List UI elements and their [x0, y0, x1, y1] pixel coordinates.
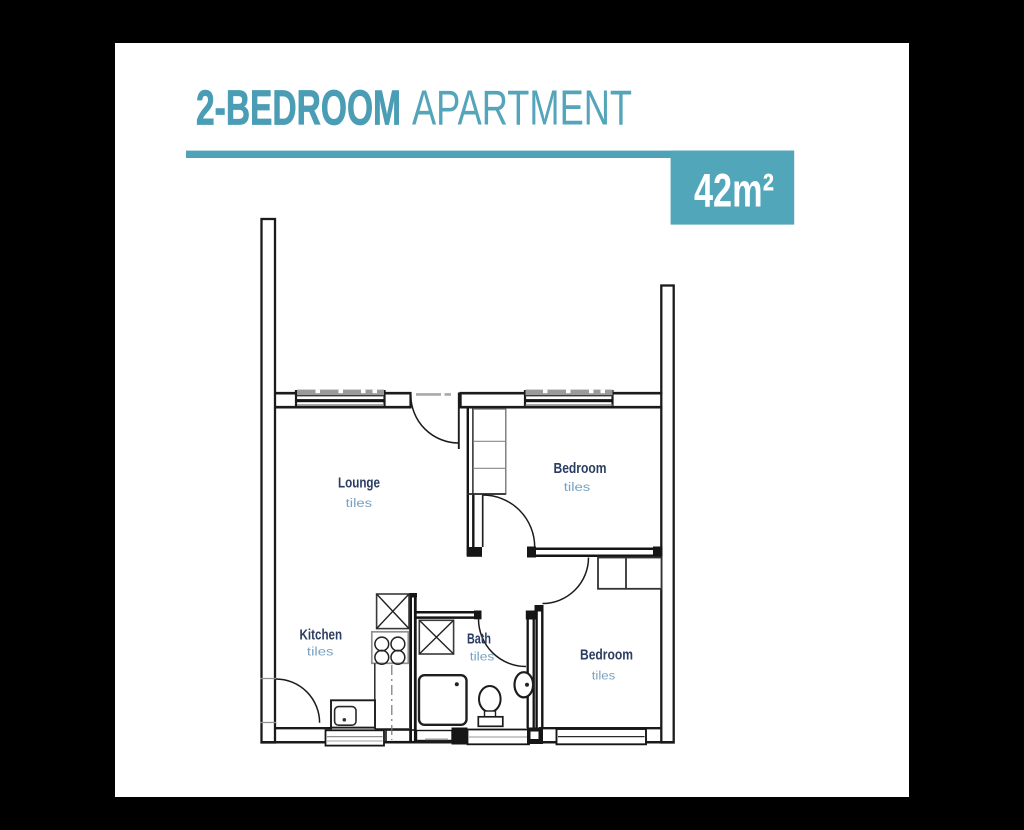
svg-text:Lounge: Lounge [338, 475, 380, 492]
svg-text:tiles: tiles [346, 496, 373, 510]
svg-text:tiles: tiles [564, 480, 591, 494]
svg-text:Bedroom: Bedroom [554, 460, 607, 477]
svg-text:tiles: tiles [307, 645, 334, 659]
svg-text:Bedroom: Bedroom [580, 647, 633, 664]
svg-text:2-BEDROOM: 2-BEDROOM [196, 81, 401, 136]
svg-text:tiles: tiles [470, 649, 495, 663]
svg-text:Kitchen: Kitchen [300, 627, 343, 644]
svg-text:APARTMENT: APARTMENT [412, 81, 632, 136]
svg-text:42m²: 42m² [694, 165, 774, 218]
svg-text:tiles: tiles [592, 669, 616, 683]
svg-text:Bath: Bath [467, 631, 491, 648]
